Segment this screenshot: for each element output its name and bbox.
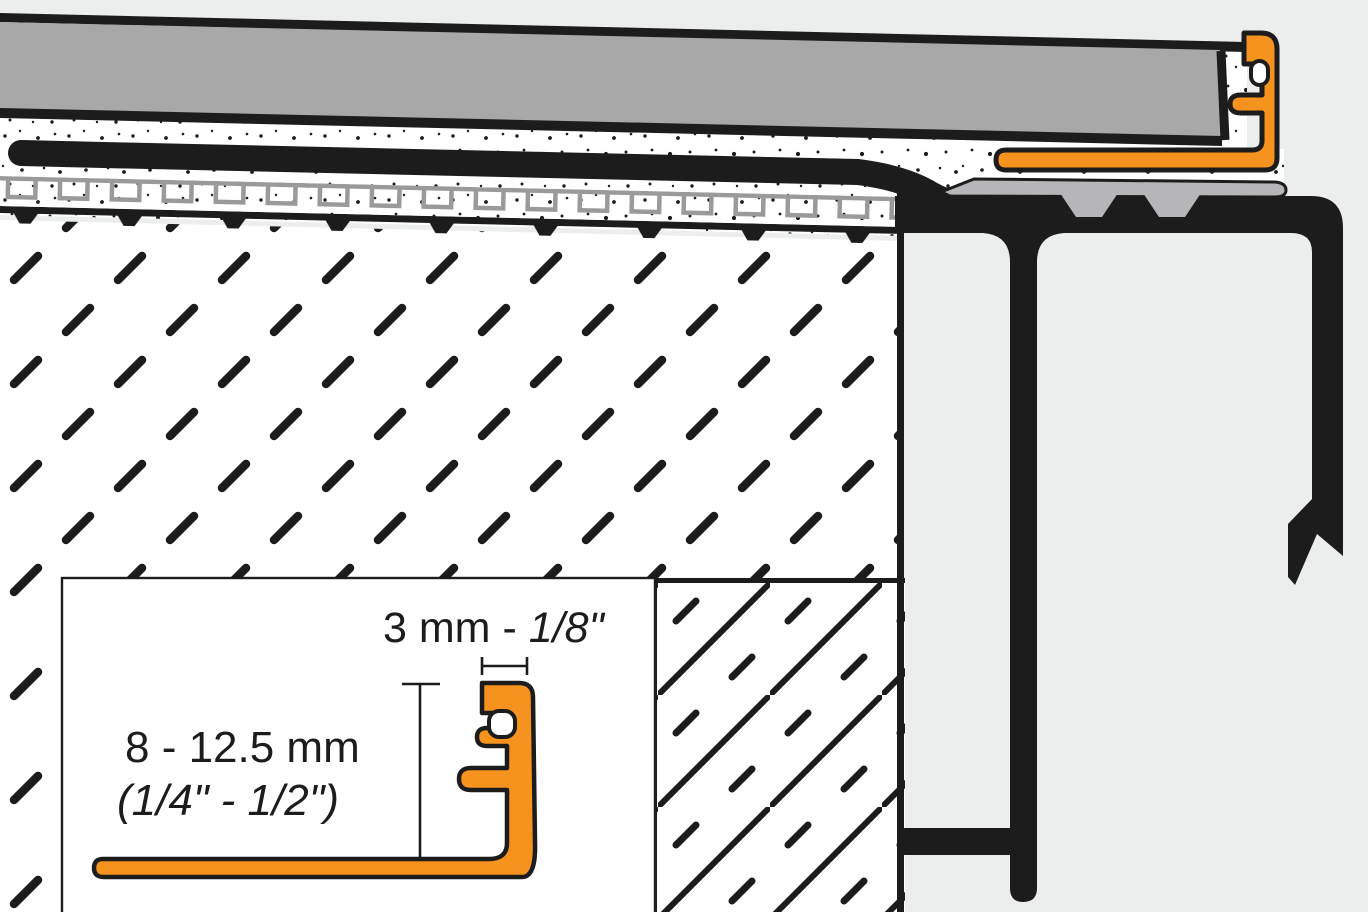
orange-profile-hook-groove [1251, 61, 1268, 85]
width-metric-text: 3 mm - [383, 604, 529, 652]
height-dimension-label-metric: 8 - 12.5 mm [125, 723, 360, 772]
tile-edge-outline [1221, 51, 1225, 140]
slab-edge-line [897, 171, 904, 912]
width-imperial-text: 1/8" [529, 604, 606, 652]
width-dimension-label: 3 mm - 1/8" [383, 604, 605, 652]
inset-profile-hook-groove [489, 711, 515, 737]
height-imperial-text: (1/4" - 1/2") [117, 776, 339, 825]
height-metric-text: 8 - 12.5 mm [125, 723, 360, 772]
concrete-substrate [652, 578, 905, 912]
detail-inset: 3 mm - 1/8" 8 - 12.5 mm (1/4" - 1/2") [62, 578, 655, 912]
height-dimension-label-imperial: (1/4" - 1/2") [117, 776, 339, 825]
edge-profile-anchor-bar [897, 828, 1013, 855]
diagram-svg: 3 mm - 1/8" 8 - 12.5 mm (1/4" - 1/2") [0, 0, 1368, 912]
profile-cross-section-diagram: 3 mm - 1/8" 8 - 12.5 mm (1/4" - 1/2") [0, 0, 1368, 912]
